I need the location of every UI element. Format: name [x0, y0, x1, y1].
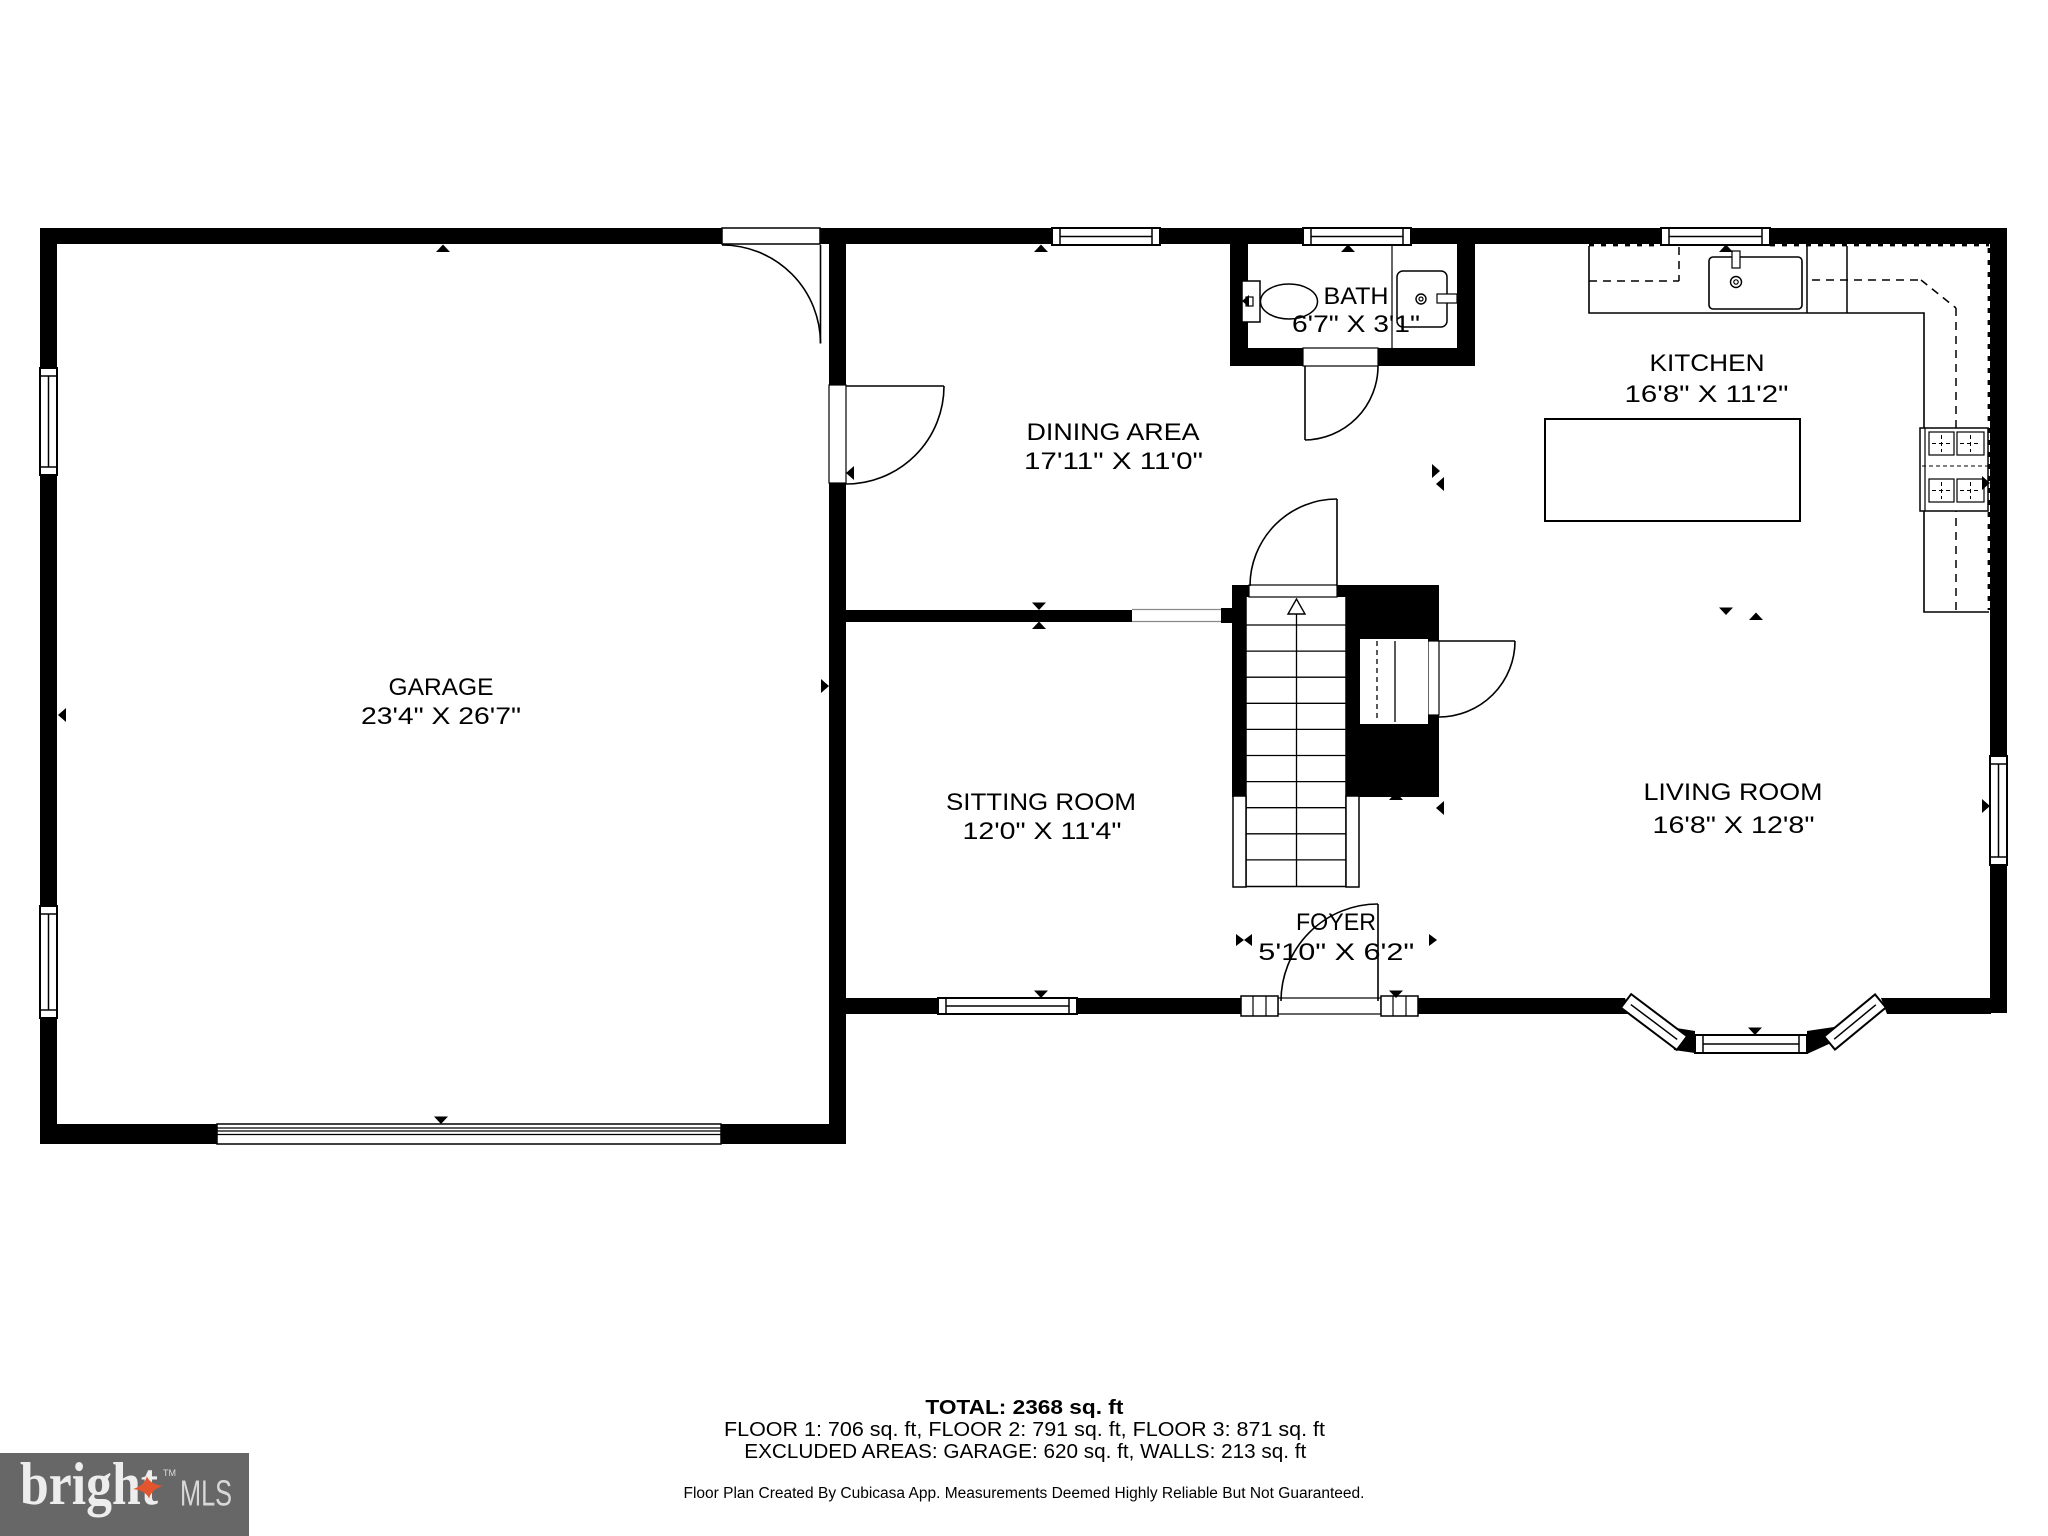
svg-text:5'10" X 6'2": 5'10" X 6'2": [1258, 939, 1414, 966]
svg-text:FLOOR 1: 706 sq. ft, FLOOR 2:: FLOOR 1: 706 sq. ft, FLOOR 2: 791 sq. ft…: [724, 1419, 1325, 1441]
svg-text:SITTING ROOM: SITTING ROOM: [946, 789, 1136, 816]
svg-text:6'7" X 3'1": 6'7" X 3'1": [1292, 311, 1420, 338]
svg-text:12'0" X 11'4": 12'0" X 11'4": [963, 818, 1122, 845]
svg-text:bright: bright: [20, 1451, 158, 1517]
svg-text:BATH: BATH: [1324, 283, 1389, 310]
svg-text:GARAGE: GARAGE: [389, 674, 494, 701]
svg-text:EXCLUDED AREAS: GARAGE: 620 sq: EXCLUDED AREAS: GARAGE: 620 sq. ft, WALL…: [744, 1441, 1306, 1463]
svg-text:MLS: MLS: [180, 1473, 232, 1514]
svg-text:LIVING ROOM: LIVING ROOM: [1644, 779, 1823, 806]
svg-text:KITCHEN: KITCHEN: [1650, 350, 1765, 377]
svg-text:Floor Plan Created By Cubicasa: Floor Plan Created By Cubicasa App. Meas…: [684, 1485, 1365, 1502]
svg-text:TOTAL: 2368 sq. ft: TOTAL: 2368 sq. ft: [925, 1397, 1123, 1419]
svg-text:17'11" X 11'0": 17'11" X 11'0": [1024, 448, 1203, 475]
svg-text:16'8" X 12'8": 16'8" X 12'8": [1653, 812, 1815, 839]
svg-text:16'8" X 11'2": 16'8" X 11'2": [1625, 381, 1789, 408]
svg-text:FOYER: FOYER: [1296, 909, 1376, 936]
svg-text:23'4" X 26'7": 23'4" X 26'7": [361, 703, 521, 730]
svg-text:TM: TM: [163, 1468, 176, 1478]
svg-text:DINING AREA: DINING AREA: [1027, 419, 1200, 446]
